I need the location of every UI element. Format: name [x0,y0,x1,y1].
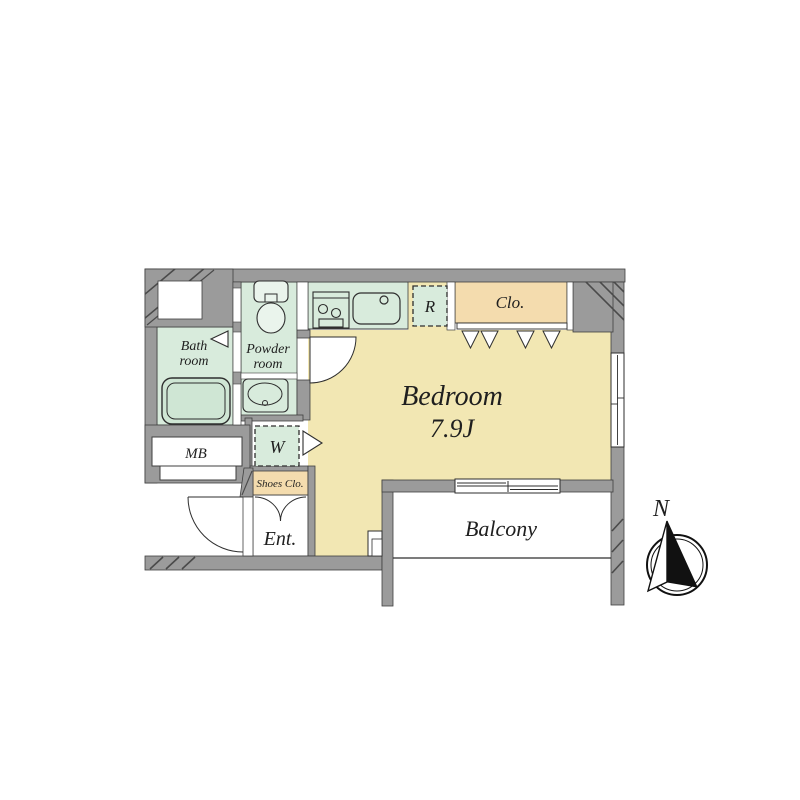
compass-needle-white [648,521,667,591]
kitchen-counter [308,282,408,329]
closet-label: Clo. [496,293,525,312]
meter-box-label: MB [184,446,207,462]
powder-room-label-line2: room [253,357,282,372]
entrance-label: Ent. [263,528,297,550]
bath-room-label-line1: Bath [181,339,207,354]
bathtub [162,378,230,424]
washer-label: W [270,437,287,457]
side-window [611,353,624,447]
powder-room-label-line1: Powder [245,342,290,357]
compass-needle-black [667,521,697,587]
balcony-sliding-window [455,479,560,493]
floor-plan-page: Bath room Powder room MB W Shoes Clo. En… [0,0,800,800]
corner-pillar [368,531,382,556]
powder-sink [243,379,288,412]
bedroom-size-label: 7.9J [430,414,476,443]
bath-room-label-line2: room [179,354,208,369]
entry-porch-floor [145,483,243,556]
balcony-label: Balcony [465,516,537,541]
compass: N [647,496,707,595]
shoes-closet-label: Shoes Clo. [256,478,303,490]
refrigerator-label: R [424,297,436,316]
bedroom-label: Bedroom [401,381,503,412]
balcony-floor [393,492,611,604]
compass-north-label: N [652,496,671,522]
floor-plan: Bath room Powder room MB W Shoes Clo. En… [0,0,800,800]
